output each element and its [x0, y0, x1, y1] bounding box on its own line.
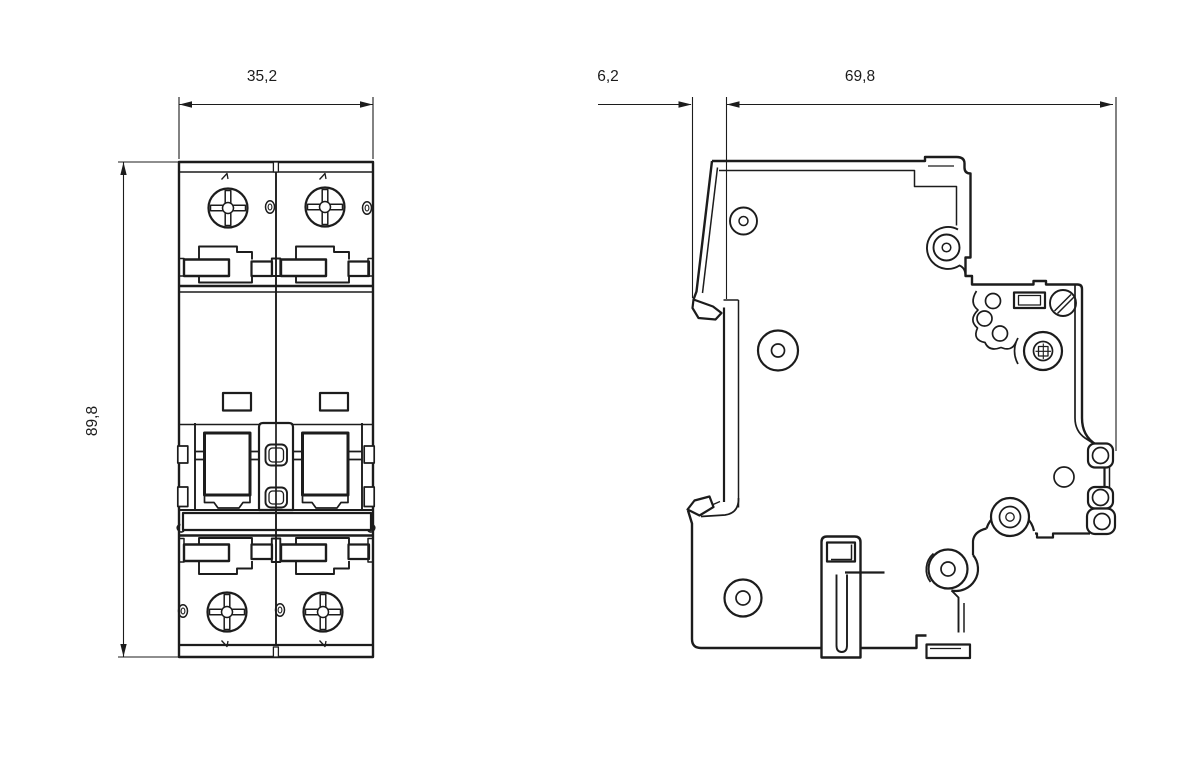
shelf-details [973, 290, 1076, 370]
handle-window-right [303, 433, 349, 495]
side-offset-label: 6,2 [597, 68, 619, 85]
side-depth-label: 69,8 [845, 68, 875, 85]
top-terminal-screw-right [306, 188, 345, 227]
dimension-front-width: 35,2 [179, 68, 373, 159]
side-view [688, 157, 1116, 658]
ringed-rivet [991, 498, 1029, 536]
terminal-lobes [1087, 444, 1115, 535]
dimension-front-height: 89,8 [84, 162, 182, 657]
din-claw-bottom [688, 497, 714, 516]
technical-drawing-page: 35,2 89,8 6,2 69,8 [0, 0, 1200, 761]
lower-rivet [929, 550, 968, 589]
dimension-side-offset: 6,2 [597, 68, 692, 298]
bottom-terminal-screw-right [304, 593, 343, 632]
upper-rivet-lobe [927, 227, 966, 276]
housing-rivets [725, 208, 1075, 617]
adjustment-screw [1015, 332, 1062, 370]
front-width-label: 35,2 [247, 68, 277, 85]
breaker-dimension-drawing: 35,2 89,8 6,2 69,8 [0, 0, 1200, 761]
top-terminal-screw-left [209, 189, 248, 228]
din-claw-top [693, 300, 722, 320]
back-slant [694, 161, 713, 300]
front-view [177, 162, 375, 657]
dimension-side-depth: 69,8 [727, 68, 1117, 451]
bottom-foot [927, 645, 971, 659]
bottom-tab [822, 537, 885, 658]
front-height-label: 89,8 [84, 406, 101, 436]
bottom-terminal-screw-left [208, 593, 247, 632]
side-outline-bottom-left [688, 511, 822, 649]
handle-window-left [205, 433, 251, 495]
